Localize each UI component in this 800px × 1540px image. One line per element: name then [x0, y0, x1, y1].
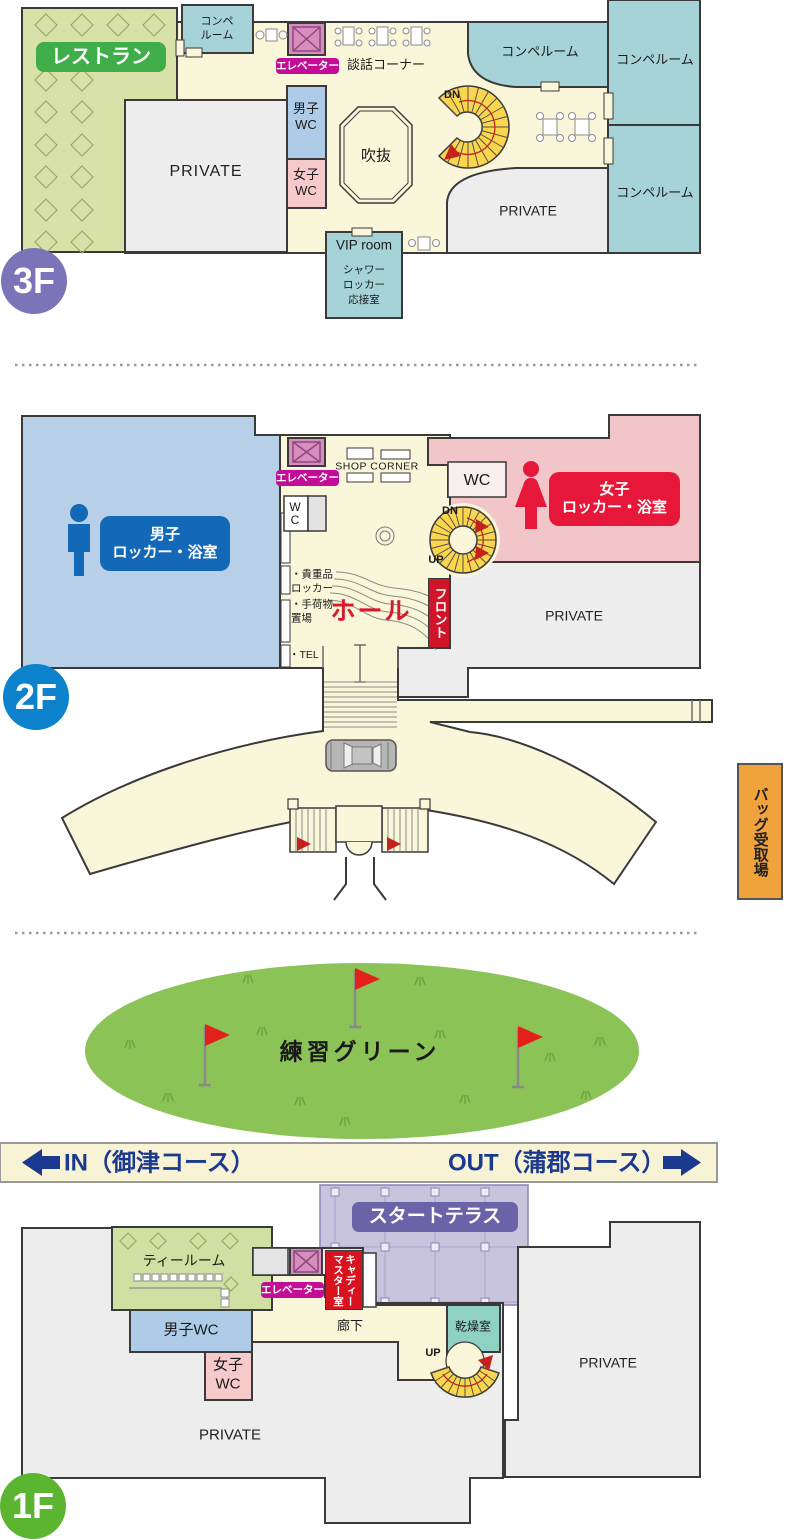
front-desk-label: フロント	[428, 578, 450, 648]
floor-plan-graphics	[0, 0, 800, 1540]
badge-3f: 3F	[1, 248, 67, 314]
shop-corner-label: SHOP CORNER	[335, 460, 419, 473]
valuables-note: ・貴重品 ロッカー	[291, 568, 333, 595]
compe-small-label: コンペ ルーム	[201, 15, 234, 43]
vip-room-label: VIP room	[336, 238, 392, 255]
caddie-master-label: キャディー マスター室	[325, 1250, 363, 1310]
in-course-label: IN（御津コース）	[64, 1147, 255, 1178]
tea-room-label: ティールーム	[143, 1252, 226, 1270]
private-3f-left-label: PRIVATE	[169, 162, 242, 182]
wc-2f-label: WC	[464, 471, 491, 491]
compe-right-bottom-label: コンペルーム	[616, 185, 694, 201]
restaurant-label: レストラン	[36, 42, 166, 72]
dn-3f-label: DN	[444, 89, 460, 103]
car-icon	[326, 740, 396, 771]
clubhouse-floor-plan: レストラン コンペ ルーム エレベーター 談話コーナー 男子 WC 女子 WC …	[0, 0, 800, 1540]
compe-mid-label: コンペルーム	[501, 44, 579, 60]
private-1f-right-label: PRIVATE	[579, 1354, 637, 1372]
out-course-label: OUT（蒲郡コース）	[448, 1147, 665, 1178]
tel-note: ・TEL	[289, 649, 319, 663]
start-terrace-label: スタートテラス	[352, 1202, 518, 1232]
wc-small-2f-label: W C	[289, 501, 300, 527]
dn-2f-label: DN	[442, 505, 458, 519]
room-private-1f-right	[505, 1222, 700, 1477]
compe-right-top-label: コンペルーム	[616, 52, 694, 68]
male-locker-label: 男子 ロッカー・浴室	[100, 516, 230, 571]
hall-label: ホール	[330, 596, 411, 627]
vip-services-label: シャワー ロッカー 応接室	[343, 263, 385, 309]
atrium-label: 吹抜	[361, 148, 391, 167]
elevator-1f-label: エレベーター	[261, 1282, 324, 1298]
bag-pickup-label: バッグ受取場	[737, 763, 783, 900]
private-3f-right-label: PRIVATE	[499, 202, 557, 220]
elevator-2f-label: エレベーター	[276, 470, 339, 486]
badge-1f: 1F	[0, 1473, 66, 1539]
male-wc-1f-label: 男子WC	[164, 1322, 219, 1341]
badge-2f: 2F	[3, 664, 69, 730]
elevator-icon-2f	[288, 438, 325, 466]
elevator-icon-3f	[288, 23, 325, 55]
private-1f-main-label: PRIVATE	[199, 1427, 261, 1446]
female-wc-1f-label: 女子 WC	[213, 1356, 243, 1394]
luggage-note: ・手荷物 置場	[291, 598, 333, 625]
entrance-porch	[288, 799, 430, 900]
chat-corner-label: 談話コーナー	[347, 57, 425, 73]
male-wc-3f-label: 男子 WC	[293, 101, 319, 134]
elevator-3f-label: エレベーター	[276, 58, 339, 74]
elevator-icon-1f	[290, 1248, 322, 1275]
up-2f-label: UP	[428, 554, 443, 568]
female-locker-label: 女子 ロッカー・浴室	[549, 472, 680, 526]
private-2f-label: PRIVATE	[545, 607, 603, 625]
up-1f-label: UP	[425, 1347, 440, 1361]
female-wc-3f-label: 女子 WC	[293, 167, 319, 200]
corridor-label: 廊下	[337, 1318, 363, 1334]
drying-room-label: 乾燥室	[455, 1320, 491, 1335]
practice-green-label: 練習グリーン	[280, 1038, 441, 1067]
